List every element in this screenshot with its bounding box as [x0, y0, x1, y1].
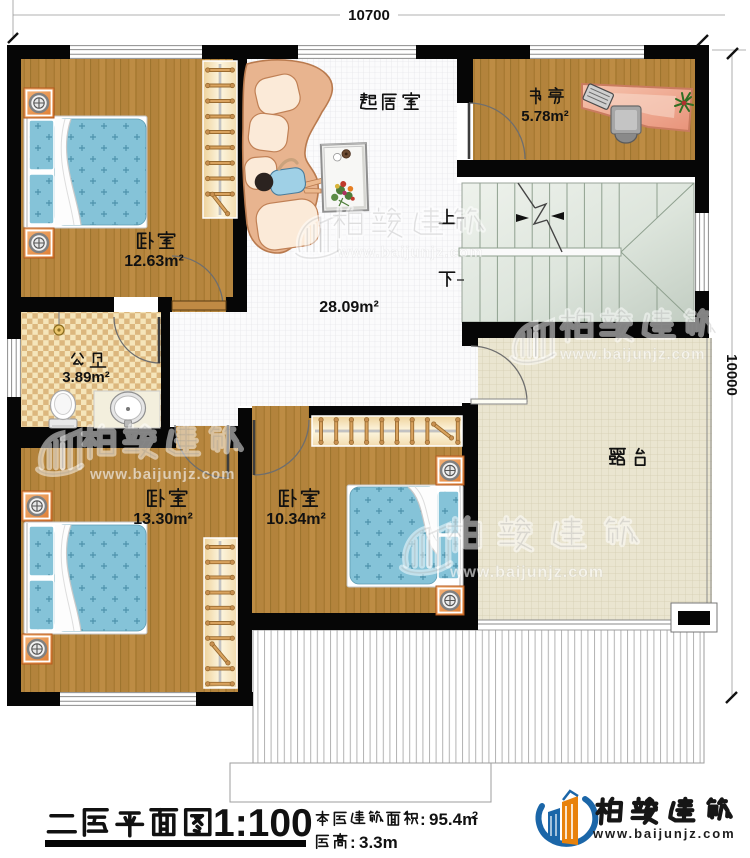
- svg-text::: :: [420, 810, 426, 829]
- svg-text:10700: 10700: [348, 7, 390, 24]
- svg-text:www.baijunjz.com: www.baijunjz.com: [449, 564, 604, 581]
- svg-text::: :: [350, 833, 356, 852]
- svg-text:www.baijunjz.com: www.baijunjz.com: [592, 826, 736, 841]
- svg-text:5.78m²: 5.78m²: [521, 108, 569, 125]
- svg-text:95.4m: 95.4m: [429, 810, 477, 829]
- svg-text:1:100: 1:100: [213, 802, 313, 845]
- svg-text:3.3m: 3.3m: [359, 833, 398, 852]
- svg-text:13.30m²: 13.30m²: [133, 511, 193, 528]
- svg-text:12.63m²: 12.63m²: [124, 253, 184, 270]
- svg-text:28.09m²: 28.09m²: [319, 299, 379, 316]
- svg-text:10.34m²: 10.34m²: [266, 511, 326, 528]
- svg-text:www.baijunjz.com: www.baijunjz.com: [337, 244, 483, 261]
- svg-text:www.baijunjz.com: www.baijunjz.com: [89, 466, 235, 483]
- svg-text:2: 2: [472, 810, 478, 822]
- svg-text:www.baijunjz.com: www.baijunjz.com: [559, 346, 705, 363]
- svg-text:3.89m²: 3.89m²: [62, 369, 110, 386]
- svg-text:10000: 10000: [723, 354, 740, 396]
